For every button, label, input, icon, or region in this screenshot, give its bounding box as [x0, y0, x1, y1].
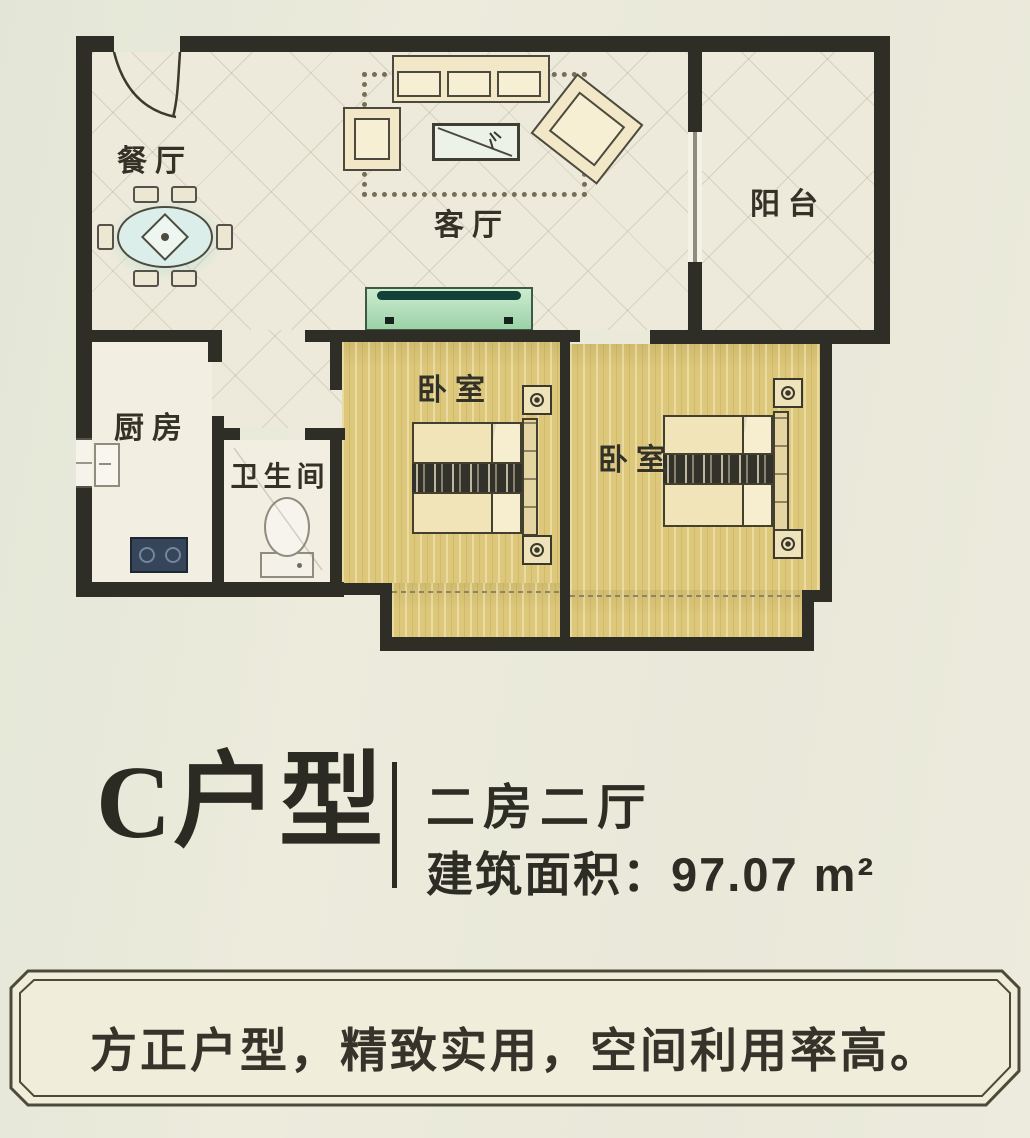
room-label-bedroom-right: 卧室 [598, 435, 674, 479]
plant-icon [490, 132, 501, 149]
plan-linework [76, 36, 890, 656]
unit-area: 建筑面积：97.07 m² [426, 836, 875, 905]
unit-layout: 二房二厅 [426, 768, 654, 839]
room-label-dining: 餐厅 [117, 136, 193, 180]
slogan-banner: 方正户型，精致实用，空间利用率高。 [8, 968, 1022, 1108]
room-label-kitchen: 厨房 [114, 403, 190, 447]
floor-plan: 餐厅 客厅 阳台 厨房 卫生间 卧室 卧室 [76, 36, 890, 656]
room-label-bathroom: 卫生间 [230, 455, 329, 495]
room-label-balcony: 阳台 [750, 179, 826, 223]
room-label-bedroom-left: 卧室 [417, 365, 493, 409]
title-divider [392, 762, 397, 888]
floorplan-flyer: 餐厅 客厅 阳台 厨房 卫生间 卧室 卧室 C户型 二房二厅 建筑面积：97.0… [0, 0, 1030, 1138]
slogan-text: 方正户型，精致实用，空间利用率高。 [8, 1012, 1022, 1081]
unit-name: C户型 [96, 746, 385, 860]
bay-window-sill [392, 592, 802, 596]
entry-door-icon [114, 52, 176, 117]
room-label-living: 客厅 [434, 200, 510, 244]
